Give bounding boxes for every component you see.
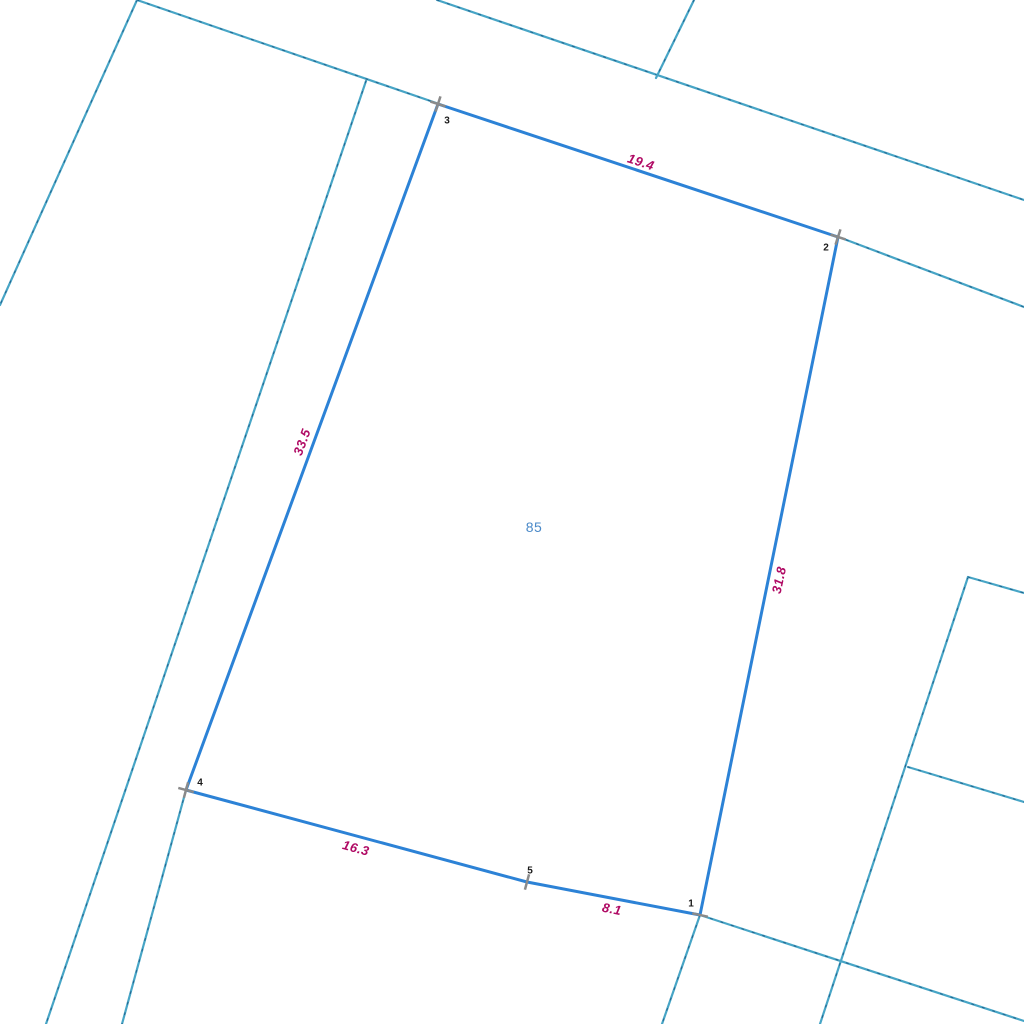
vertex-label: 3: [444, 116, 450, 127]
edge-length-label: 16.3: [341, 837, 371, 859]
vertex-label: 4: [197, 778, 203, 789]
vertex-label: 1: [688, 899, 694, 910]
edge-length-label: 31.8: [769, 565, 789, 595]
edge-length-label: 8.1: [601, 900, 623, 918]
edge-length-label: 33.5: [290, 427, 313, 458]
edge-length-label: 19.4: [626, 151, 657, 174]
vertex-label: 5: [527, 866, 533, 877]
parcel-number-label: 85: [526, 519, 543, 535]
cadastral-map-canvas[interactable]: 85 1234519.431.88.116.333.5: [0, 0, 1024, 1024]
map-labels-layer: 85 1234519.431.88.116.333.5: [0, 0, 1024, 1024]
vertex-label: 2: [823, 243, 829, 254]
